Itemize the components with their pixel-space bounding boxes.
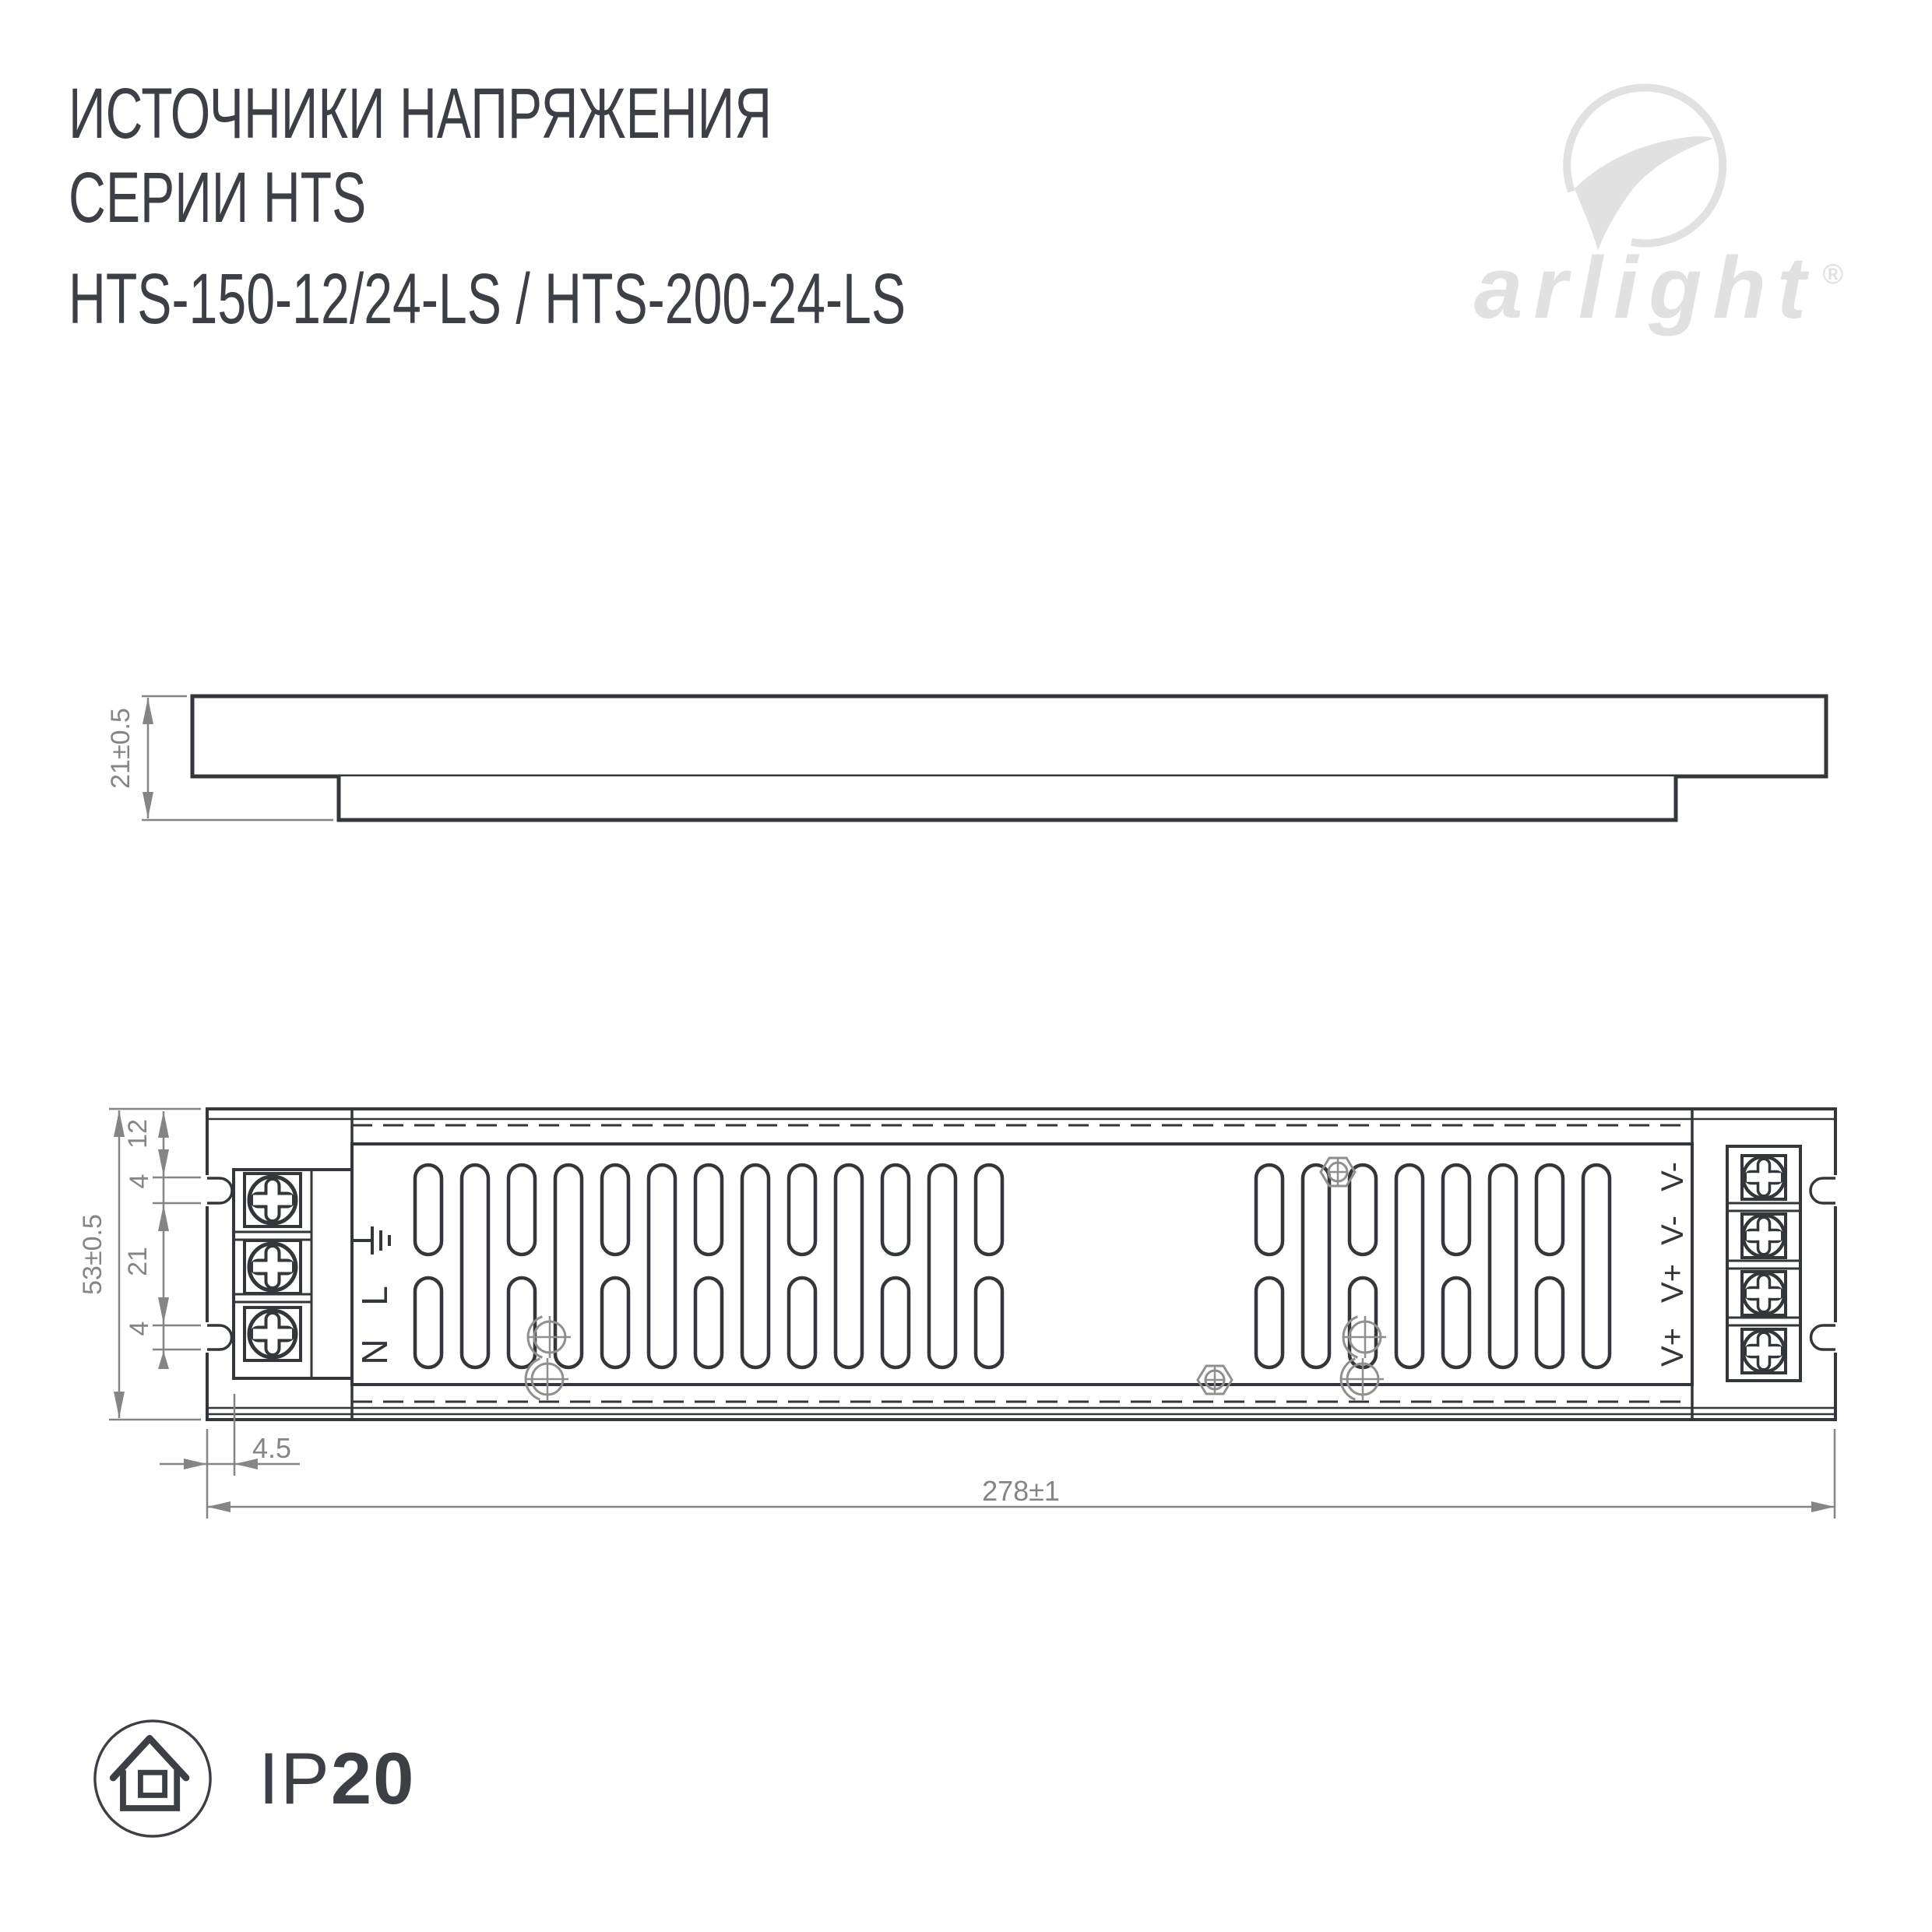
terminal-label-vplus: V+ <box>1656 1328 1690 1367</box>
ip-prefix: IP <box>259 1737 331 1819</box>
brand-logo: arlight ® <box>1474 87 1843 336</box>
terminal-label-vplus: V+ <box>1656 1264 1690 1303</box>
dim-height-label: 53±0.5 <box>78 1214 107 1295</box>
screw-icon <box>1744 1216 1785 1257</box>
chassis-outline <box>207 1109 1835 1420</box>
logo-swoosh-icon <box>1575 136 1713 251</box>
dim-chain-21: 21 <box>123 1247 153 1276</box>
dim-chain-12: 12 <box>123 1119 153 1149</box>
screw-icon <box>1744 1273 1785 1314</box>
house-window-icon <box>140 1772 164 1795</box>
logo-wordmark: arlight <box>1474 239 1817 336</box>
screw-icon <box>1744 1157 1785 1198</box>
screw-icon <box>249 1244 296 1290</box>
dim-offset-label: 4.5 <box>252 1432 291 1464</box>
indoor-use-icon <box>92 1718 213 1839</box>
dim-length-label: 278±1 <box>982 1475 1060 1507</box>
terminal-label-vminus: V- <box>1656 1216 1690 1245</box>
ip-rating: IP20 <box>92 1718 415 1839</box>
output-terminal-block <box>1727 1146 1800 1381</box>
ip-value: 20 <box>331 1737 416 1819</box>
side-view: 21±0.5 <box>106 696 1826 820</box>
house-body-icon <box>123 1770 177 1808</box>
terminal-label-L: L <box>354 1286 395 1306</box>
side-height-dim-label: 21±0.5 <box>106 708 135 789</box>
screw-icon <box>249 1177 296 1223</box>
logo-registered-mark: ® <box>1822 258 1843 290</box>
screw-icon <box>249 1311 296 1357</box>
terminal-label-N: N <box>354 1339 395 1364</box>
top-view: L N V- V- V+ V+ 53±0.5 <box>78 1109 1839 1519</box>
side-view-base-plate <box>339 776 1676 820</box>
datasheet-page: ИСТОЧНИКИ НАПРЯЖЕНИЯ СЕРИИ HTS HTS-150-1… <box>0 0 1932 1932</box>
side-view-body <box>192 696 1826 776</box>
technical-drawing: arlight ® 21±0.5 <box>0 0 1932 1932</box>
dim-chain: 12 4 21 4 <box>123 1111 201 1369</box>
dim-length: 278±1 <box>207 1429 1835 1519</box>
input-terminal-block <box>234 1170 352 1378</box>
dim-chain-4b: 4 <box>125 1321 154 1336</box>
screw-icon <box>1744 1331 1785 1372</box>
terminal-label-vminus: V- <box>1656 1162 1690 1191</box>
dim-chain-4a: 4 <box>125 1174 154 1189</box>
ip-rating-text: IP20 <box>259 1737 415 1821</box>
